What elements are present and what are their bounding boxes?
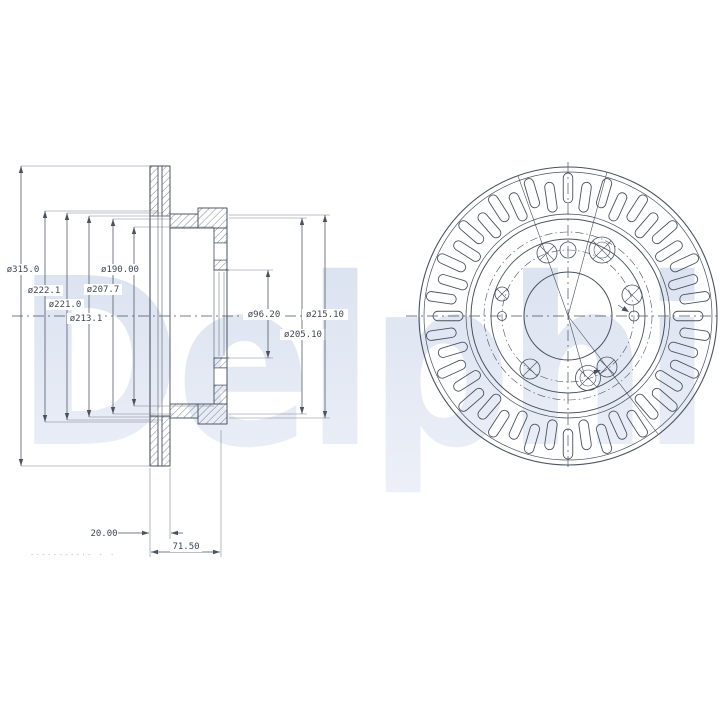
hat-flange-top — [170, 214, 198, 228]
dimension-arrow — [111, 219, 115, 226]
dimension-arrow — [19, 166, 23, 173]
dimension-arrow — [43, 211, 47, 218]
dim-label-d215: ø215.10 — [306, 310, 344, 320]
friction-plate-outboard-top — [150, 166, 158, 216]
friction-plate-inboard-top — [162, 166, 170, 216]
vent-slot — [607, 191, 628, 222]
dimension-arrow — [213, 550, 220, 554]
faded-stamp: -·-·---·-·- · · — [30, 551, 116, 559]
hub-wall-seg — [214, 260, 227, 270]
hat-flange-step-top — [198, 208, 227, 228]
hat-flange-step-bottom — [198, 404, 227, 424]
dim-label-w20: 20.00 — [90, 529, 117, 539]
dimension-arrow — [323, 215, 327, 222]
stud-hole-section-top — [214, 243, 227, 260]
hub-wall-seg — [214, 385, 227, 404]
dim-label-d205: ø205.10 — [284, 330, 322, 340]
dimension-arrow — [87, 216, 91, 223]
dim-label-d190: ø190.00 — [101, 265, 139, 275]
vent-slot — [523, 177, 541, 208]
hub-wall-seg — [214, 228, 227, 243]
vent-slot — [544, 182, 558, 213]
dimension-arrow — [151, 550, 158, 554]
vent-slot — [578, 182, 592, 213]
dimension-arrow — [65, 213, 69, 220]
dim-label-d213: ø213.1 — [70, 314, 103, 324]
dimension-arrow — [171, 531, 178, 535]
dimension-arrow — [300, 218, 304, 225]
stud-hole-section-bottom — [214, 368, 227, 385]
friction-plate-inboard-bottom — [162, 416, 170, 466]
dim-label-d222: ø222.1 — [28, 286, 61, 296]
drawing-canvas: Delphi — [0, 0, 720, 720]
friction-plate-outboard-bottom — [150, 416, 158, 466]
vent-slot — [508, 191, 529, 222]
dim-label-d96: ø96.20 — [248, 310, 281, 320]
dim-label-d207: ø207.7 — [87, 285, 120, 295]
brake-disc-technical-drawing: Delphi — [0, 0, 720, 720]
dim-label-d315: ø315.0 — [7, 265, 40, 275]
dim-label-d221: ø221.0 — [49, 300, 82, 310]
dimension-arrow — [142, 531, 149, 535]
dim-label-w71: 71.50 — [172, 542, 199, 552]
hub-wall-seg — [214, 358, 227, 368]
